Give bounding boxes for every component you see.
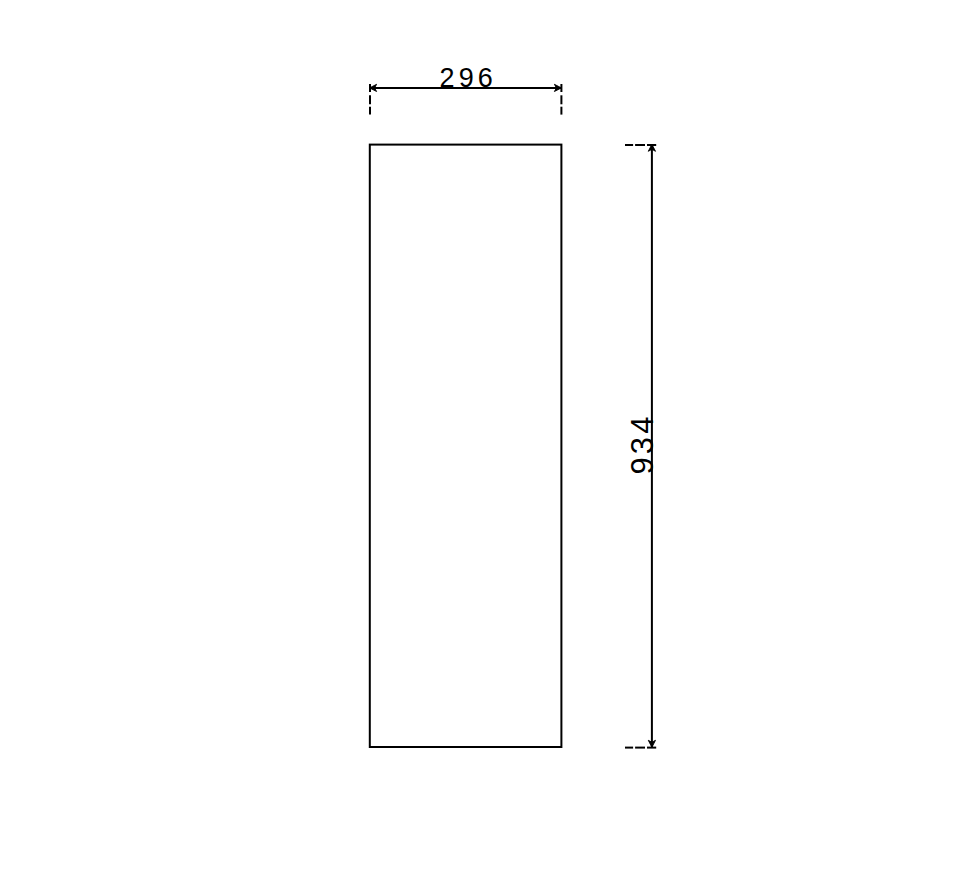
svg-text:296: 296 xyxy=(440,63,493,93)
svg-text:934: 934 xyxy=(625,417,660,475)
